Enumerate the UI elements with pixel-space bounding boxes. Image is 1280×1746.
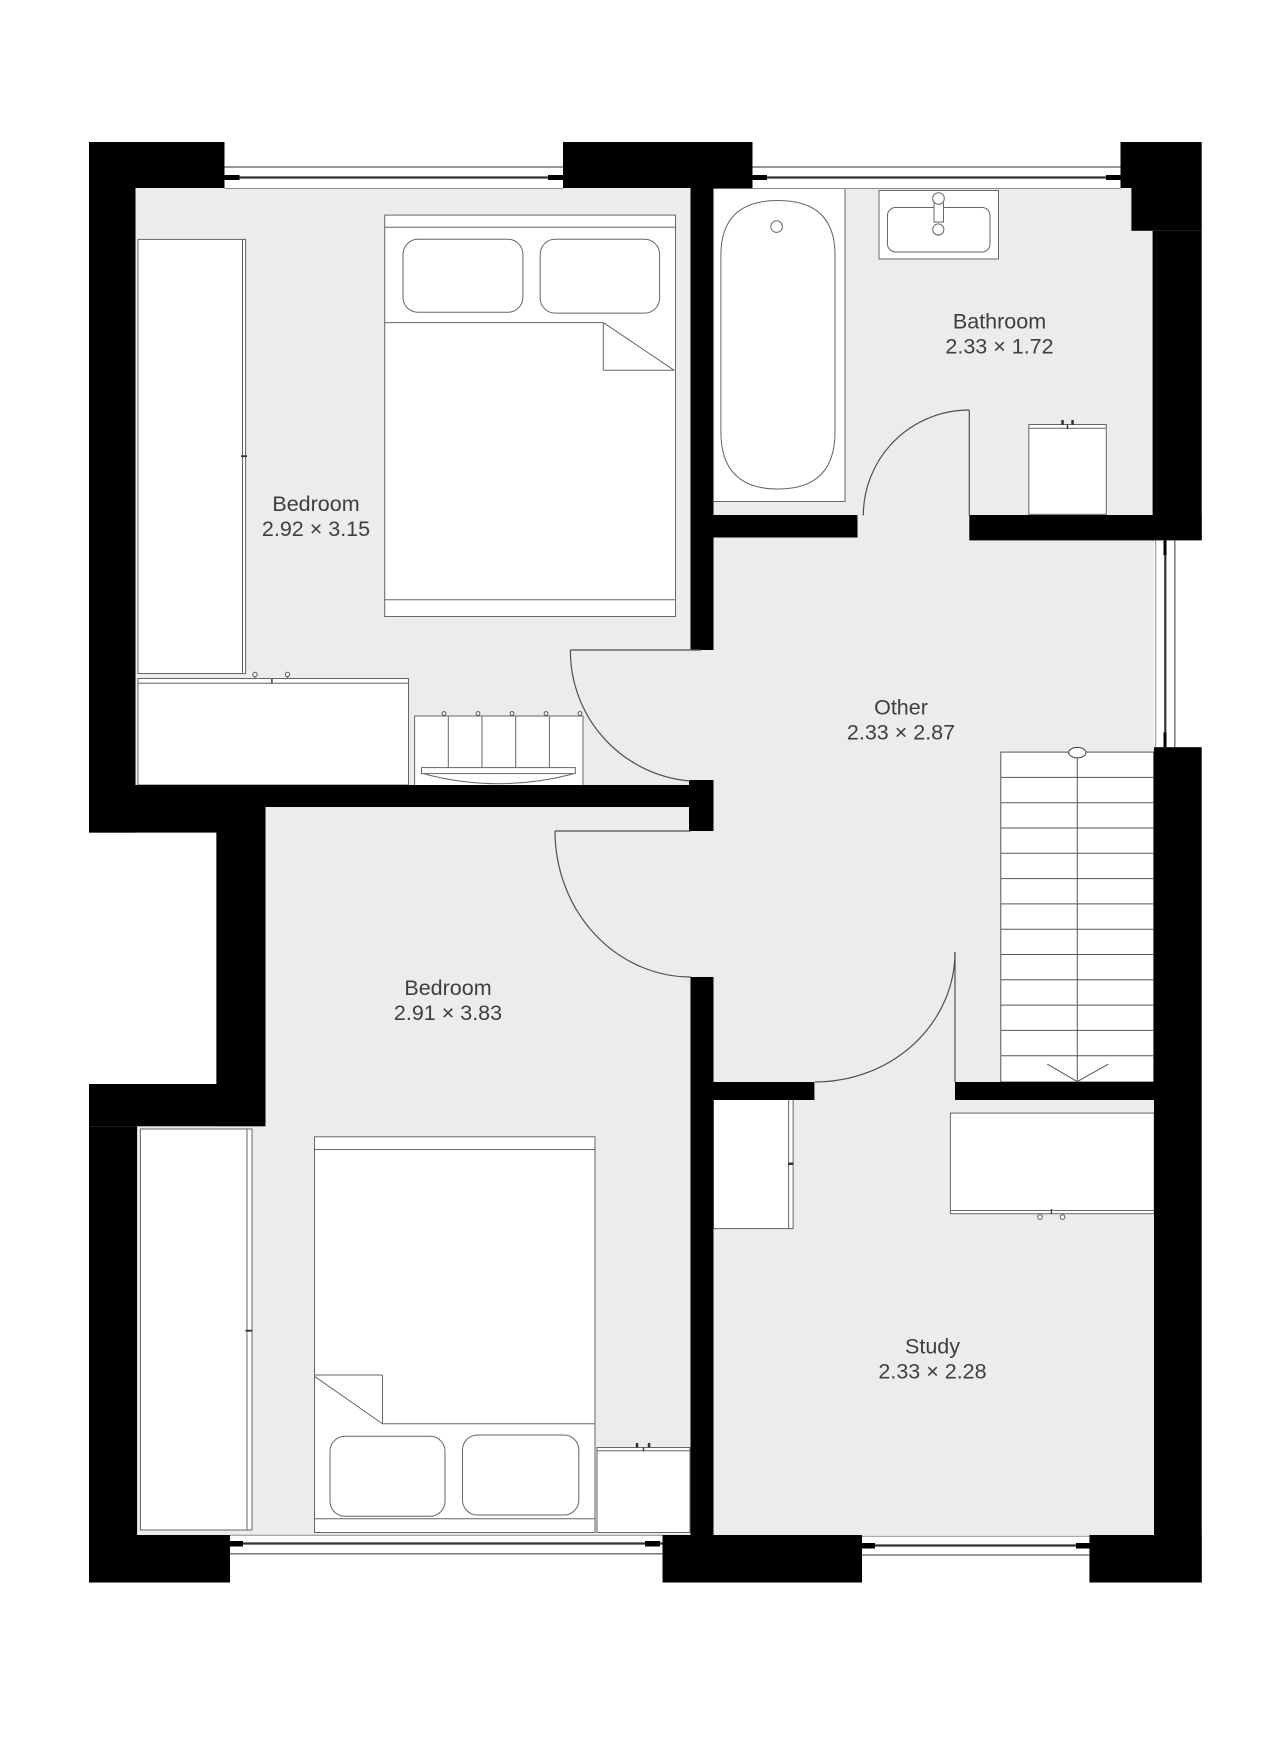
svg-text:Other: Other (874, 696, 928, 720)
svg-text:2.33 × 2.87: 2.33 × 2.87 (847, 721, 955, 745)
svg-text:2.33 × 2.28: 2.33 × 2.28 (878, 1360, 986, 1384)
svg-text:2.92 × 3.15: 2.92 × 3.15 (262, 517, 370, 541)
svg-text:2.33 × 1.72: 2.33 × 1.72 (945, 335, 1053, 359)
svg-text:Study: Study (905, 1335, 960, 1359)
svg-text:Bathroom: Bathroom (953, 310, 1046, 334)
svg-text:Bedroom: Bedroom (404, 976, 491, 1000)
svg-text:Bedroom: Bedroom (272, 492, 359, 516)
svg-text:2.91 × 3.83: 2.91 × 3.83 (394, 1001, 502, 1025)
